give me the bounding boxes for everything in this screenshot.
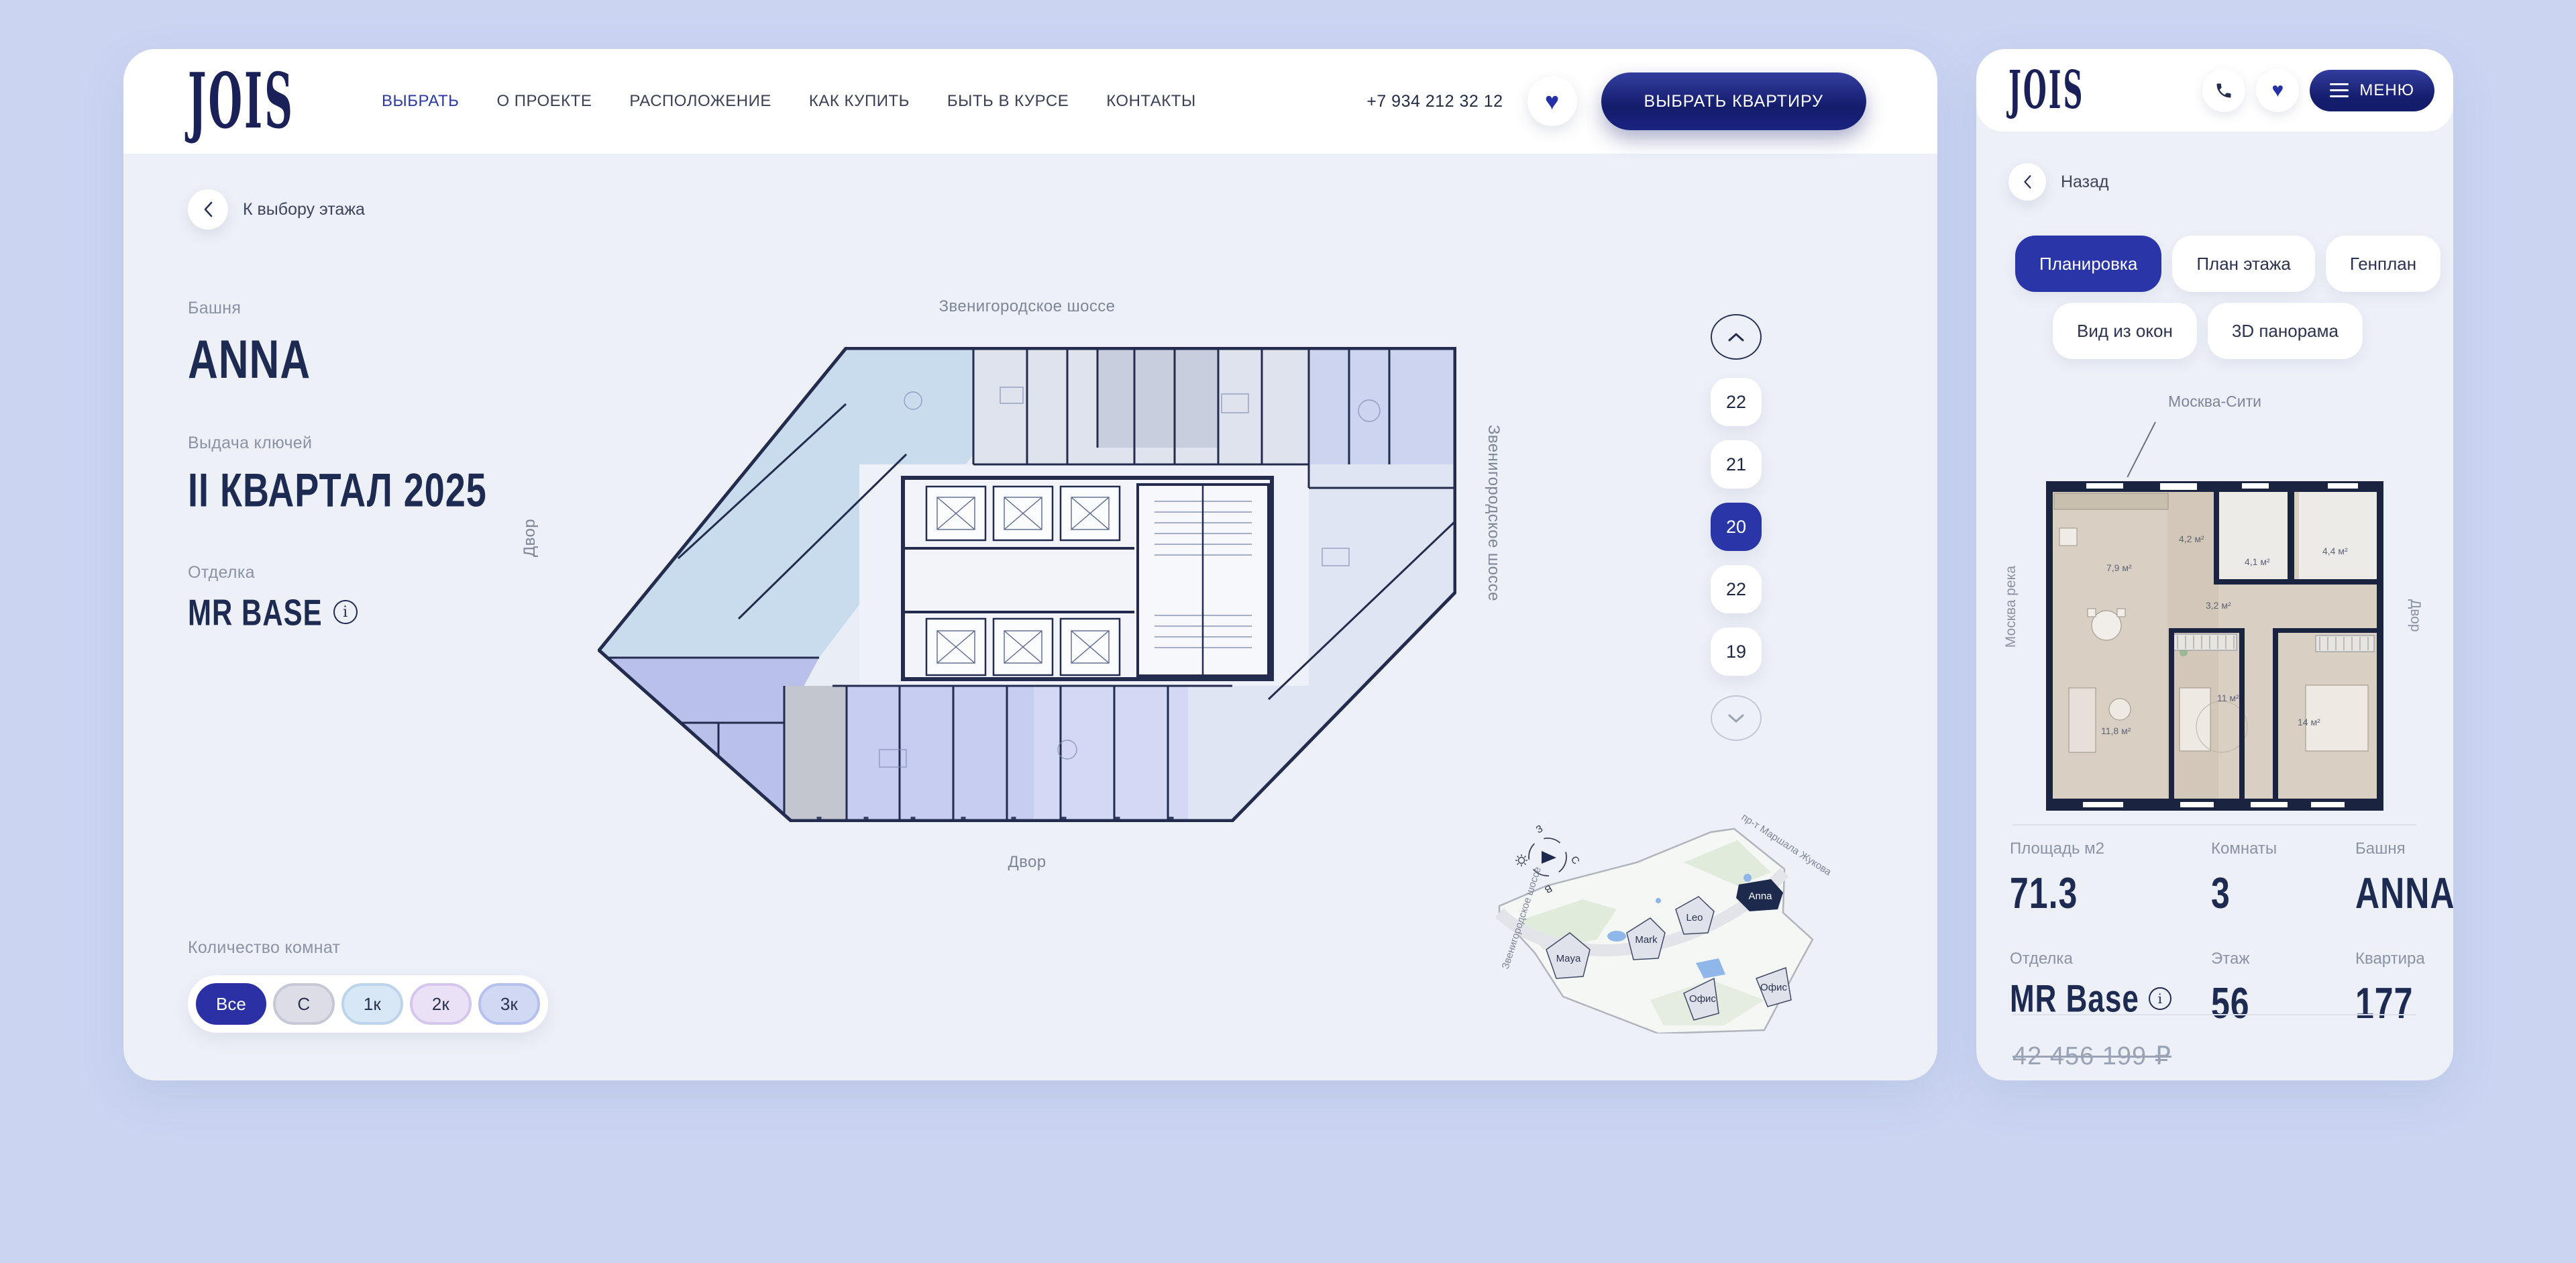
back-button[interactable] [188, 189, 228, 230]
floor-plan[interactable] [598, 347, 1456, 822]
keys-value: II КВАРТАЛ 2025 [188, 464, 604, 530]
city-pointer-line [2127, 422, 2156, 478]
call-button[interactable] [2202, 69, 2245, 112]
jois-logo: JOIS [188, 57, 294, 146]
tower-value-sidebar: ANNA [2355, 868, 2453, 929]
building-office-2-label: Офис [1760, 982, 1787, 993]
svg-text:3,2 м²: 3,2 м² [2206, 600, 2231, 611]
svg-text:4,2 м²: 4,2 м² [2179, 534, 2204, 544]
view-tabs: Планировка План этажа Генплан Вид из око… [2015, 236, 2418, 359]
svg-text:4,4 м²: 4,4 м² [2322, 546, 2348, 556]
svg-text:З: З [1534, 823, 1545, 836]
floor-label-sidebar: Этаж [2211, 950, 2355, 968]
heart-icon: ♥ [2272, 81, 2284, 101]
floor-down-button[interactable] [1711, 695, 1762, 741]
phone-icon [2214, 81, 2233, 100]
back-label: К выбору этажа [243, 200, 365, 219]
tab-genplan[interactable]: Генплан [2326, 236, 2440, 292]
floor-up-button[interactable] [1711, 314, 1762, 360]
river-label: Москва река [2003, 566, 2019, 648]
tower-info: Башня ANNA Выдача ключей II КВАРТАЛ 2025… [188, 299, 604, 632]
site-minimap[interactable]: Maya Mark Leo Anna Офис Офис З С В [1483, 799, 1845, 1033]
nav-raspolozhenie[interactable]: РАСПОЛОЖЕНИЕ [629, 92, 771, 111]
chevron-up-icon [1728, 333, 1744, 342]
street-label-top: Звенигородское шоссе [826, 297, 1228, 316]
building-leo-label: Leo [1686, 912, 1703, 923]
chevron-left-icon [2023, 174, 2032, 190]
room-filters: Количество комнат Все С 1к 2к 3к [188, 938, 548, 1033]
nav-vybrat[interactable]: ВЫБРАТЬ [382, 92, 459, 111]
filter-3k[interactable]: 3к [478, 983, 540, 1025]
back-button-sidebar[interactable] [2008, 163, 2046, 201]
heart-icon: ♥ [1545, 89, 1559, 113]
keys-label: Выдача ключей [188, 434, 604, 453]
floor-22[interactable]: 22 [1711, 378, 1762, 426]
sun-icon [1515, 854, 1527, 866]
yard-label-left: Двор [521, 519, 539, 557]
building-mark-label: Mark [1635, 934, 1658, 946]
area-value: 71.3 [2010, 868, 2211, 929]
header-right: +7 934 212 32 12 ♥ ВЫБРАТЬ КВАРТИРУ [1366, 72, 1866, 130]
finish-value: MR BASE [188, 592, 323, 644]
svg-text:11 м²: 11 м² [2217, 693, 2239, 703]
tab-planirovka[interactable]: Планировка [2015, 236, 2161, 292]
chevron-left-icon [203, 201, 213, 218]
floor-21[interactable]: 21 [1711, 440, 1762, 489]
svg-text:С: С [1568, 854, 1582, 867]
building-maya-label: Maya [1556, 953, 1581, 964]
apartment-number-value: 177 [2355, 978, 2453, 1039]
apartment-sidebar: JOIS ♥ МЕНЮ Назад Планировка [1976, 49, 2453, 1080]
rooms-value: 3 [2211, 868, 2355, 929]
apartment-zone-gray-bottom[interactable] [784, 686, 847, 822]
apartment-details: Площадь м2 71.3 Комнаты 3 Башня ANNA Отд… [2010, 840, 2426, 1025]
yard-label: Двор [2407, 599, 2423, 632]
chevron-down-icon [1728, 714, 1744, 723]
floor-22b[interactable]: 22 [1711, 565, 1762, 613]
nav-kak-kupit[interactable]: КАК КУПИТЬ [809, 92, 910, 111]
favorites-button-sidebar[interactable]: ♥ [2256, 69, 2299, 112]
apartment-number-label: Квартира [2355, 950, 2453, 968]
jois-logo-small: JOIS [2008, 60, 2084, 121]
svg-text:7,9 м²: 7,9 м² [2106, 562, 2132, 573]
old-price-strikethrough: 42 456 199 ₽ [2012, 1041, 2171, 1071]
filter-2k[interactable]: 2к [410, 983, 472, 1025]
main-header: JOIS ВЫБРАТЬ О ПРОЕКТЕ РАСПОЛОЖЕНИЕ КАК … [123, 49, 1937, 154]
apartment-zone-lavender-b1[interactable] [847, 686, 1034, 822]
rooms-label: Комнаты [2211, 840, 2355, 858]
street-label-right: Звенигородское шоссе [1484, 425, 1503, 601]
info-icon[interactable]: i [2149, 987, 2171, 1010]
tower-label: Башня [188, 299, 604, 318]
finish-label-sidebar: Отделка [2010, 950, 2211, 968]
city-direction-label: Москва-Сити [1976, 393, 2453, 411]
floor-20-selected[interactable]: 20 [1711, 503, 1762, 551]
filter-studio[interactable]: С [273, 983, 335, 1025]
apartment-plan[interactable]: 7,9 м² 4,2 м² 4,1 м² 4,4 м² 3,2 м² 11,8 … [2046, 481, 2383, 811]
room-count-label: Количество комнат [188, 938, 548, 958]
filter-1k[interactable]: 1к [341, 983, 403, 1025]
floor-19[interactable]: 19 [1711, 627, 1762, 676]
hamburger-icon [2330, 83, 2349, 97]
sidebar-header: JOIS ♥ МЕНЮ [1976, 49, 2453, 132]
back-label-sidebar: Назад [2061, 172, 2109, 192]
nav-kontakty[interactable]: КОНТАКТЫ [1106, 92, 1195, 111]
divider [2012, 824, 2417, 825]
sidebar-back[interactable]: Назад [2008, 163, 2109, 201]
svg-text:4,1 м²: 4,1 м² [2245, 556, 2270, 567]
area-label: Площадь м2 [2010, 840, 2211, 858]
back-to-floor-choice[interactable]: К выбору этажа [188, 189, 365, 230]
finish-label: Отделка [188, 563, 604, 583]
tab-vid-iz-okon[interactable]: Вид из окон [2053, 303, 2197, 359]
select-apartment-button[interactable]: ВЫБРАТЬ КВАРТИРУ [1601, 72, 1866, 130]
nav-o-proekte[interactable]: О ПРОЕКТЕ [496, 92, 592, 111]
tab-plan-etazha[interactable]: План этажа [2172, 236, 2315, 292]
building-core [903, 478, 1272, 679]
menu-button[interactable]: МЕНЮ [2310, 70, 2434, 111]
nav-byt-v-kurse[interactable]: БЫТЬ В КУРСЕ [947, 92, 1069, 111]
yard-label-bottom: Двор [826, 853, 1228, 872]
room-filter-row: Все С 1к 2к 3к [188, 975, 548, 1033]
svg-text:14 м²: 14 м² [2298, 717, 2320, 727]
floor-selector: 22 21 20 22 19 [1711, 314, 1762, 741]
tower-label-sidebar: Башня [2355, 840, 2453, 858]
info-icon[interactable]: i [333, 600, 358, 624]
main-card: JOIS ВЫБРАТЬ О ПРОЕКТЕ РАСПОЛОЖЕНИЕ КАК … [123, 49, 1937, 1080]
floor-value-sidebar: 56 [2211, 978, 2355, 1039]
apartment-zone-gray-top[interactable] [1097, 347, 1218, 448]
building-anna-label: Anna [1748, 891, 1772, 902]
menu-label: МЕНЮ [2359, 81, 2414, 100]
divider [2012, 1014, 2417, 1015]
tower-name: ANNA [188, 329, 604, 404]
svg-text:11,8 м²: 11,8 м² [2101, 725, 2131, 736]
apartment-zone-lavender-b2[interactable] [1034, 686, 1188, 822]
building-office-1-label: Офис [1689, 993, 1716, 1005]
favorites-button[interactable]: ♥ [1527, 77, 1577, 126]
finish-value-sidebar: MR Base [2010, 978, 2139, 1032]
main-nav: ВЫБРАТЬ О ПРОЕКТЕ РАСПОЛОЖЕНИЕ КАК КУПИТ… [382, 92, 1196, 111]
filter-all[interactable]: Все [196, 983, 266, 1025]
phone-number[interactable]: +7 934 212 32 12 [1366, 92, 1503, 111]
tab-3d-panorama[interactable]: 3D панорама [2208, 303, 2363, 359]
